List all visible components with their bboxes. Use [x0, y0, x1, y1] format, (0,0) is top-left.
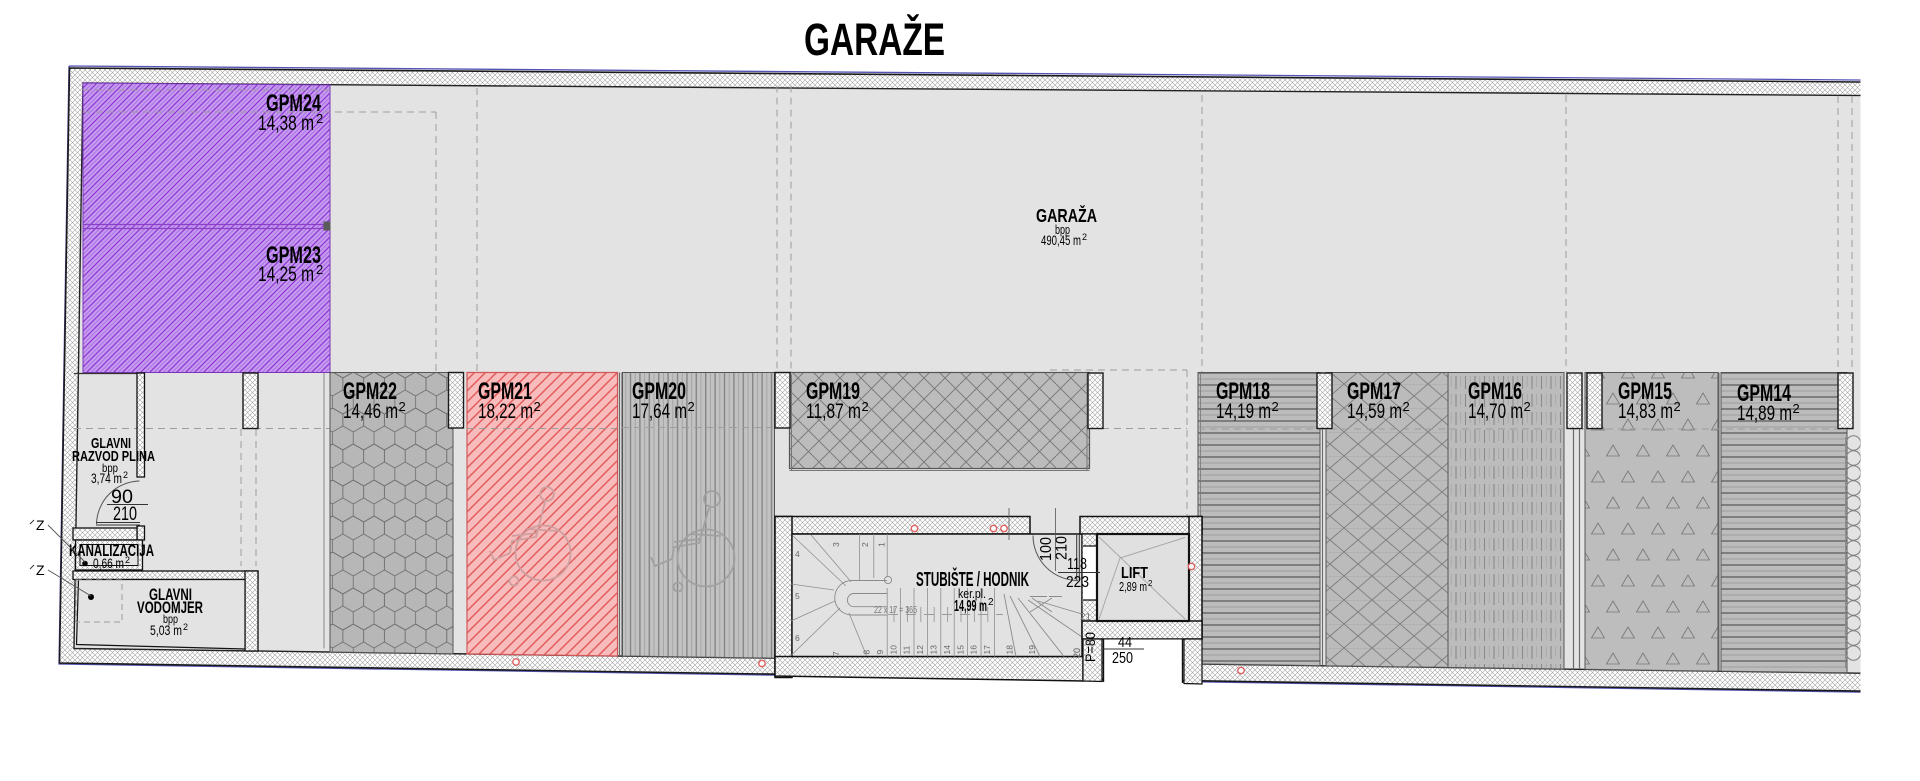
- svg-text:2: 2: [123, 470, 128, 480]
- svg-text:20: 20: [1072, 648, 1082, 658]
- svg-text:14,19 m: 14,19 m: [1216, 400, 1271, 423]
- svg-text:14,70 m: 14,70 m: [1468, 400, 1523, 423]
- svg-text:5,03 m: 5,03 m: [150, 622, 182, 638]
- svg-text:P=80: P=80: [1082, 632, 1098, 662]
- svg-text:1: 1: [877, 542, 887, 547]
- svg-text:13: 13: [929, 645, 939, 655]
- svg-text:14,38 m: 14,38 m: [258, 112, 314, 135]
- svg-text:18,22 m: 18,22 m: [478, 400, 533, 423]
- svg-text:2: 2: [862, 399, 869, 414]
- svg-text:210: 210: [113, 504, 137, 525]
- svg-text:2: 2: [1403, 399, 1410, 414]
- svg-text:Z: Z: [36, 517, 45, 533]
- svg-text:12: 12: [915, 645, 925, 655]
- svg-text:14,83 m: 14,83 m: [1618, 400, 1673, 423]
- svg-text:22 x 17 = 365: 22 x 17 = 365: [874, 605, 917, 616]
- svg-text:9: 9: [875, 650, 885, 655]
- svg-text:4: 4: [795, 549, 800, 559]
- svg-text:14,25 m: 14,25 m: [258, 263, 314, 286]
- svg-text:44: 44: [1118, 634, 1132, 651]
- svg-text:2,89 m: 2,89 m: [1119, 579, 1147, 594]
- svg-text:5: 5: [795, 591, 800, 601]
- svg-text:2: 2: [183, 622, 188, 632]
- svg-text:11,87 m: 11,87 m: [806, 400, 861, 423]
- svg-text:21: 21: [1080, 612, 1092, 623]
- svg-text:11: 11: [902, 645, 912, 654]
- svg-text:17,64 m: 17,64 m: [632, 400, 687, 423]
- svg-text:10: 10: [888, 645, 898, 655]
- svg-text:2: 2: [1674, 399, 1681, 414]
- svg-text:2: 2: [1148, 579, 1153, 588]
- svg-text:7: 7: [831, 651, 841, 656]
- svg-text:14,99 m: 14,99 m: [954, 598, 987, 615]
- svg-text:2: 2: [1272, 399, 1279, 414]
- svg-text:6: 6: [795, 633, 800, 643]
- svg-text:2: 2: [316, 262, 323, 277]
- svg-text:2: 2: [860, 542, 870, 547]
- svg-text:2: 2: [399, 399, 406, 414]
- svg-text:2: 2: [1793, 401, 1800, 416]
- svg-text:14,59 m: 14,59 m: [1347, 400, 1402, 423]
- svg-text:2: 2: [125, 555, 130, 565]
- svg-text:19: 19: [1027, 645, 1037, 655]
- svg-text:8: 8: [862, 650, 872, 655]
- svg-text:2: 2: [534, 399, 541, 414]
- svg-text:2: 2: [316, 111, 323, 126]
- svg-text:17: 17: [982, 645, 992, 655]
- svg-text:2: 2: [1082, 232, 1087, 242]
- svg-text:118: 118: [1067, 556, 1087, 573]
- svg-text:490,45 m: 490,45 m: [1041, 232, 1081, 248]
- svg-text:14,89 m: 14,89 m: [1737, 402, 1792, 425]
- svg-text:15: 15: [955, 645, 965, 655]
- svg-text:Z: Z: [36, 562, 45, 578]
- svg-text:14,46 m: 14,46 m: [343, 400, 398, 423]
- svg-text:GARAŽE: GARAŽE: [804, 14, 945, 65]
- svg-text:223: 223: [1066, 574, 1089, 591]
- svg-text:3,74 m: 3,74 m: [91, 470, 122, 486]
- svg-text:0,66 m: 0,66 m: [93, 555, 124, 571]
- svg-text:2: 2: [1524, 399, 1531, 414]
- svg-text:14: 14: [942, 645, 952, 655]
- svg-text:2: 2: [988, 597, 994, 608]
- svg-text:3: 3: [831, 542, 841, 547]
- svg-text:18: 18: [1005, 645, 1015, 655]
- svg-text:16: 16: [969, 645, 979, 655]
- svg-text:2: 2: [688, 399, 695, 414]
- svg-text:250: 250: [1112, 650, 1133, 667]
- svg-text:100: 100: [1038, 537, 1055, 561]
